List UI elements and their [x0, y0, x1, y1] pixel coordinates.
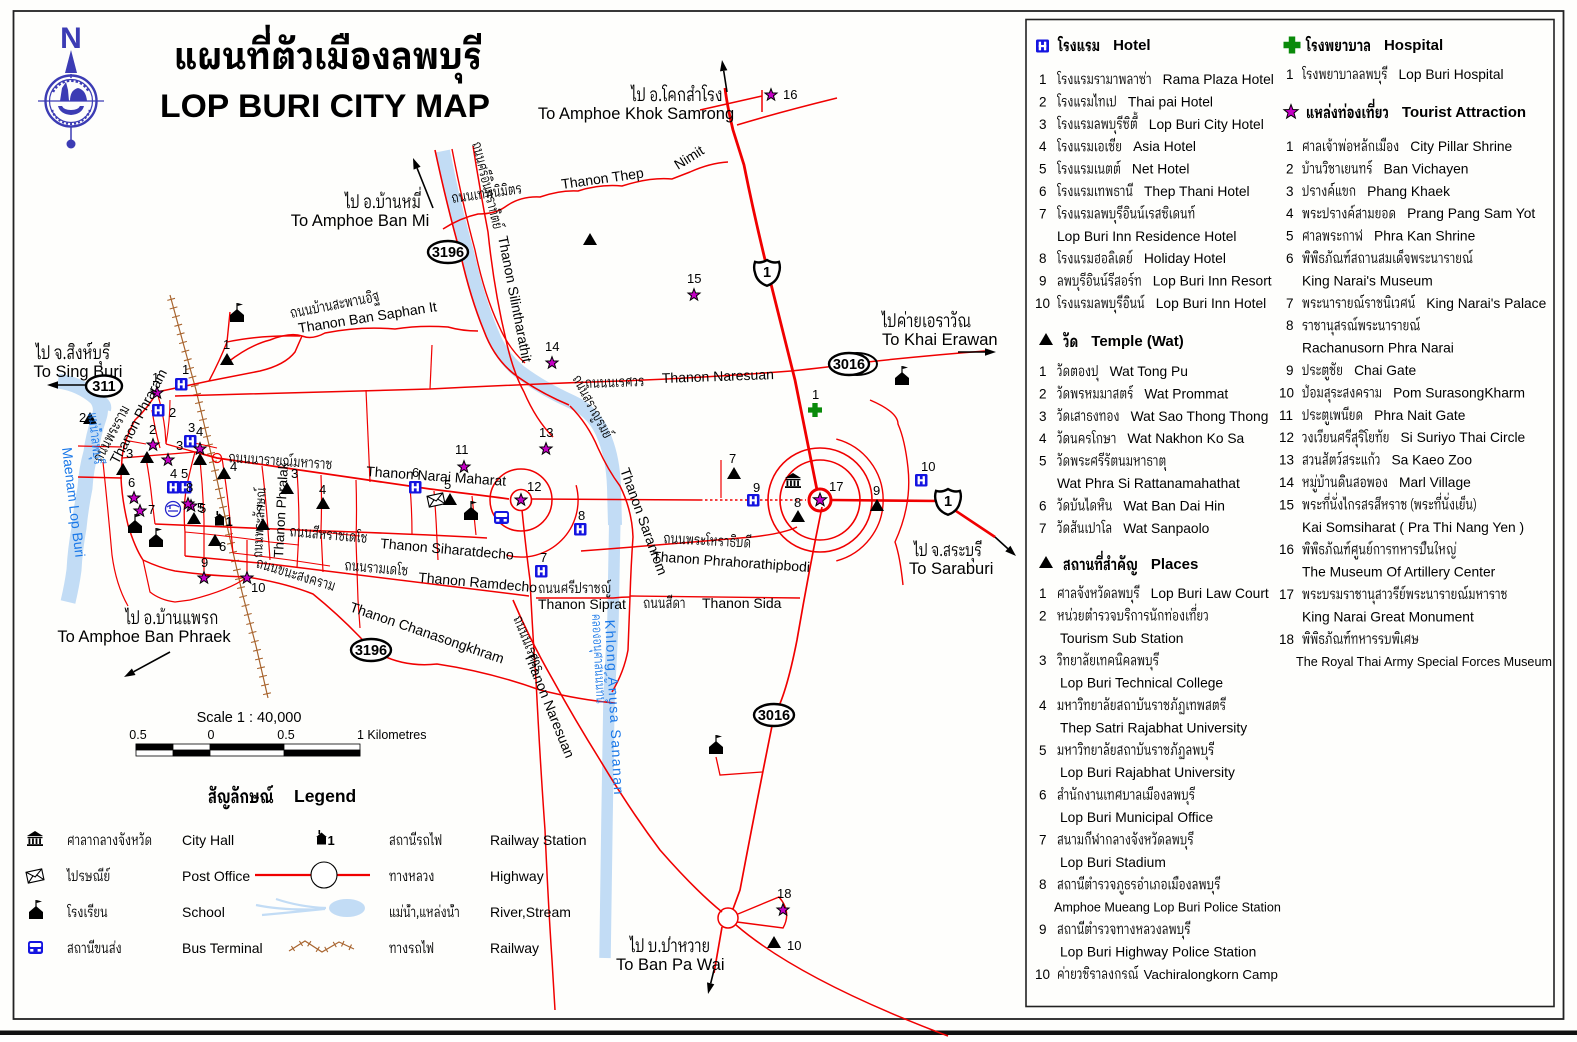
svg-text:Wat Sao Thong Thong: Wat Sao Thong Thong [1131, 409, 1269, 424]
svg-text:9: 9 [201, 555, 208, 570]
svg-text:17: 17 [829, 479, 843, 494]
svg-text:King Narai Great Monument: King Narai Great Monument [1302, 609, 1474, 624]
svg-text:Vachiralongkorn Camp: Vachiralongkorn Camp [1144, 967, 1278, 982]
svg-text:Thanon Siprat: Thanon Siprat [538, 596, 626, 612]
svg-text:Marl Village: Marl Village [1399, 475, 1471, 490]
svg-text:4: 4 [319, 482, 326, 497]
svg-text:3: 3 [188, 420, 195, 435]
svg-text:3: 3 [1039, 409, 1047, 424]
svg-text:City Hall: City Hall [182, 832, 234, 848]
svg-text:City Pillar Shrine: City Pillar Shrine [1410, 139, 1512, 154]
svg-text:2: 2 [1286, 161, 1294, 176]
svg-text:2: 2 [79, 410, 86, 425]
svg-text:3: 3 [1286, 184, 1294, 199]
svg-text:Highway: Highway [490, 868, 544, 884]
svg-text:1: 1 [763, 265, 771, 281]
svg-text:8: 8 [1039, 877, 1047, 892]
svg-text:3196: 3196 [355, 643, 387, 659]
svg-text:1 Kilometres: 1 Kilometres [357, 728, 426, 742]
svg-text:5: 5 [1286, 229, 1294, 244]
svg-text:12: 12 [1279, 430, 1294, 445]
svg-text:6: 6 [1286, 251, 1294, 266]
svg-text:8: 8 [578, 508, 585, 523]
svg-text:To Khai Erawan: To Khai Erawan [882, 331, 998, 349]
svg-text:7: 7 [540, 550, 547, 565]
svg-text:Lop Buri Technical College: Lop Buri Technical College [1060, 676, 1223, 691]
svg-text:The Royal Thai Army Special Fo: The Royal Thai Army Special Forces Museu… [1296, 655, 1552, 669]
svg-text:To Sing Buri: To Sing Buri [34, 363, 123, 381]
svg-text:13: 13 [539, 425, 553, 440]
svg-text:4: 4 [1286, 206, 1294, 221]
svg-text:Railway: Railway [490, 940, 539, 956]
svg-text:Legend: Legend [294, 786, 356, 806]
svg-text:Tourist Attraction: Tourist Attraction [1402, 104, 1526, 121]
svg-text:Wat Nakhon Ko Sa: Wat Nakhon Ko Sa [1127, 431, 1244, 446]
svg-text:8: 8 [794, 495, 801, 510]
svg-text:1: 1 [944, 494, 952, 510]
svg-text:2: 2 [1039, 94, 1047, 109]
svg-text:Bus Terminal: Bus Terminal [182, 940, 263, 956]
svg-text:Lop Buri Highway Police Statio: Lop Buri Highway Police Station [1060, 944, 1256, 959]
svg-text:15: 15 [687, 271, 701, 286]
svg-text:3: 3 [1039, 117, 1047, 132]
svg-text:3016: 3016 [758, 708, 790, 724]
svg-text:0: 0 [208, 728, 215, 742]
svg-text:14: 14 [545, 339, 559, 354]
svg-text:5: 5 [1039, 162, 1047, 177]
svg-text:3: 3 [176, 438, 183, 453]
svg-text:10: 10 [1279, 385, 1294, 400]
svg-text:Ban Vichayen: Ban Vichayen [1384, 161, 1469, 176]
svg-text:Wat Tong Pu: Wat Tong Pu [1110, 364, 1188, 379]
svg-text:18: 18 [777, 886, 791, 901]
svg-text:Lop Buri Stadium: Lop Buri Stadium [1060, 855, 1166, 870]
svg-text:16: 16 [1279, 542, 1294, 557]
svg-text:Rama Plaza Hotel: Rama Plaza Hotel [1163, 72, 1274, 87]
svg-text:Pom SurasongKharm: Pom SurasongKharm [1393, 385, 1525, 400]
svg-text:4: 4 [1039, 139, 1047, 154]
svg-text:3016: 3016 [833, 357, 865, 373]
svg-text:Lop Buri Rajabhat University: Lop Buri Rajabhat University [1060, 765, 1235, 780]
svg-text:3196: 3196 [432, 245, 464, 261]
svg-text:Scale 1 : 40,000: Scale 1 : 40,000 [197, 710, 302, 726]
svg-text:Lop Buri Law Court: Lop Buri Law Court [1151, 586, 1269, 601]
svg-text:Places: Places [1151, 556, 1199, 573]
svg-text:10: 10 [921, 459, 935, 474]
svg-text:1: 1 [328, 833, 335, 848]
svg-text:4: 4 [170, 466, 177, 481]
svg-text:Lop Buri Inn Resort: Lop Buri Inn Resort [1153, 274, 1272, 289]
svg-text:8: 8 [1286, 318, 1294, 333]
svg-text:Wat Sanpaolo: Wat Sanpaolo [1123, 521, 1209, 536]
svg-text:6: 6 [1039, 184, 1047, 199]
svg-text:1: 1 [223, 337, 230, 352]
svg-text:Phra Nait Gate: Phra Nait Gate [1374, 408, 1466, 423]
svg-text:To Ban Pa Wai: To Ban Pa Wai [616, 956, 725, 974]
svg-text:0.5: 0.5 [277, 728, 294, 742]
svg-text:9: 9 [873, 483, 880, 498]
svg-text:5: 5 [199, 501, 206, 516]
svg-text:Thep Thani Hotel: Thep Thani Hotel [1144, 184, 1250, 199]
svg-text:Rachanusorn Phra Narai: Rachanusorn Phra Narai [1302, 341, 1454, 356]
svg-text:2: 2 [169, 405, 176, 420]
svg-text:11: 11 [1279, 408, 1293, 423]
svg-text:10: 10 [251, 580, 265, 595]
svg-text:Amphoe Mueang Lop Buri Police: Amphoe Mueang Lop Buri Police Station [1054, 901, 1281, 915]
svg-text:1: 1 [182, 362, 189, 377]
svg-text:Thanon Sida: Thanon Sida [702, 595, 782, 611]
svg-text:Lop Buri Hospital: Lop Buri Hospital [1398, 67, 1503, 82]
svg-text:LOP BURI CITY MAP: LOP BURI CITY MAP [160, 88, 490, 124]
svg-text:To Amphoe Ban Phraek: To Amphoe Ban Phraek [57, 628, 231, 646]
svg-text:Thai pai Hotel: Thai pai Hotel [1128, 94, 1213, 109]
svg-text:8: 8 [186, 480, 193, 495]
svg-text:King Narai's Museum: King Narai's Museum [1302, 273, 1433, 288]
svg-text:6: 6 [219, 539, 226, 554]
svg-text:The Museum Of Artillery Center: The Museum Of Artillery Center [1302, 565, 1496, 580]
svg-text:7: 7 [148, 502, 155, 517]
svg-text:7: 7 [1039, 206, 1047, 221]
svg-text:7: 7 [1039, 832, 1047, 847]
svg-text:King Narai's Palace: King Narai's Palace [1426, 296, 1546, 311]
svg-text:9: 9 [753, 480, 760, 495]
svg-text:Asia Hotel: Asia Hotel [1133, 139, 1196, 154]
svg-text:Temple (Wat): Temple (Wat) [1091, 333, 1184, 350]
svg-text:9: 9 [1039, 274, 1047, 289]
svg-text:Hotel: Hotel [1113, 37, 1151, 54]
svg-text:10: 10 [787, 938, 801, 953]
svg-text:8: 8 [1039, 251, 1047, 266]
svg-text:1: 1 [1039, 72, 1047, 87]
svg-text:Kai Somsiharat ( Pra Thi Nang: Kai Somsiharat ( Pra Thi Nang Yen ) [1302, 520, 1524, 535]
svg-text:5: 5 [1039, 743, 1047, 758]
svg-text:Post Office: Post Office [182, 868, 250, 884]
svg-text:5: 5 [181, 466, 188, 481]
svg-text:Lop Buri Municipal Office: Lop Buri Municipal Office [1060, 810, 1213, 825]
svg-text:4: 4 [1039, 698, 1047, 713]
svg-text:1: 1 [226, 514, 233, 529]
svg-text:Lop Buri Inn Residence Hotel: Lop Buri Inn Residence Hotel [1057, 229, 1236, 244]
svg-text:1: 1 [1286, 139, 1294, 154]
svg-text:Chai Gate: Chai Gate [1354, 363, 1416, 378]
svg-text:4: 4 [1039, 431, 1047, 446]
svg-text:To Saraburi: To Saraburi [909, 560, 993, 578]
svg-text:3: 3 [1039, 653, 1047, 668]
svg-text:Wat Phra Si Rattanamahathat: Wat Phra Si Rattanamahathat [1057, 476, 1240, 491]
svg-text:311: 311 [92, 379, 115, 395]
svg-text:6: 6 [128, 475, 135, 490]
svg-text:Lop Buri City Hotel: Lop Buri City Hotel [1149, 117, 1264, 132]
svg-text:18: 18 [1279, 632, 1294, 647]
svg-text:9: 9 [1286, 363, 1294, 378]
svg-text:5: 5 [1039, 454, 1047, 469]
svg-text:River,Stream: River,Stream [490, 904, 571, 920]
svg-text:9: 9 [1039, 922, 1047, 937]
svg-text:Si Suriyo Thai Circle: Si Suriyo Thai Circle [1400, 430, 1525, 445]
svg-text:16: 16 [783, 87, 797, 102]
svg-text:Sa Kaeo Zoo: Sa Kaeo Zoo [1391, 453, 1472, 468]
svg-text:13: 13 [1279, 453, 1294, 468]
svg-text:Thep Satri Rajabhat University: Thep Satri Rajabhat University [1060, 720, 1247, 735]
svg-text:Phang Khaek: Phang Khaek [1367, 184, 1450, 199]
svg-text:Wat Ban Dai Hin: Wat Ban Dai Hin [1123, 498, 1224, 513]
svg-text:14: 14 [1279, 475, 1295, 490]
svg-text:15: 15 [1279, 497, 1294, 512]
svg-text:Net Hotel: Net Hotel [1132, 162, 1190, 177]
svg-text:Hospital: Hospital [1384, 37, 1443, 54]
svg-text:6: 6 [1039, 498, 1047, 513]
svg-text:1: 1 [1039, 364, 1047, 379]
svg-text:1: 1 [1039, 586, 1047, 601]
svg-text:Phra Kan Shrine: Phra Kan Shrine [1374, 229, 1476, 244]
svg-text:Wat Prommat: Wat Prommat [1144, 386, 1228, 401]
svg-text:3: 3 [291, 466, 298, 481]
svg-text:1: 1 [1286, 67, 1294, 82]
svg-text:2: 2 [1039, 608, 1047, 623]
svg-text:1: 1 [812, 387, 819, 402]
svg-text:Lop Buri Inn Hotel: Lop Buri Inn Hotel [1156, 296, 1266, 311]
svg-text:2: 2 [1039, 386, 1047, 401]
svg-text:To Amphoe Ban Mi: To Amphoe Ban Mi [291, 212, 430, 230]
svg-text:School: School [182, 904, 225, 920]
svg-text:17: 17 [1279, 587, 1294, 602]
svg-text:2: 2 [149, 422, 156, 437]
svg-text:7: 7 [1286, 296, 1294, 311]
svg-text:10: 10 [1035, 296, 1050, 311]
svg-text:Tourism Sub Station: Tourism Sub Station [1060, 631, 1183, 646]
svg-text:10: 10 [1035, 967, 1050, 982]
svg-text:4: 4 [196, 424, 203, 439]
svg-text:7: 7 [729, 451, 736, 466]
svg-text:12: 12 [527, 479, 541, 494]
svg-text:11: 11 [455, 442, 469, 457]
svg-text:7: 7 [1039, 521, 1047, 536]
svg-text:Holiday Hotel: Holiday Hotel [1144, 251, 1226, 266]
svg-text:6: 6 [1039, 788, 1047, 803]
svg-text:Railway Station: Railway Station [490, 832, 587, 848]
svg-text:To Amphoe Khok Samrong: To Amphoe Khok Samrong [538, 105, 734, 123]
svg-text:Prang Pang Sam Yot: Prang Pang Sam Yot [1407, 206, 1535, 221]
svg-text:0.5: 0.5 [129, 728, 146, 742]
